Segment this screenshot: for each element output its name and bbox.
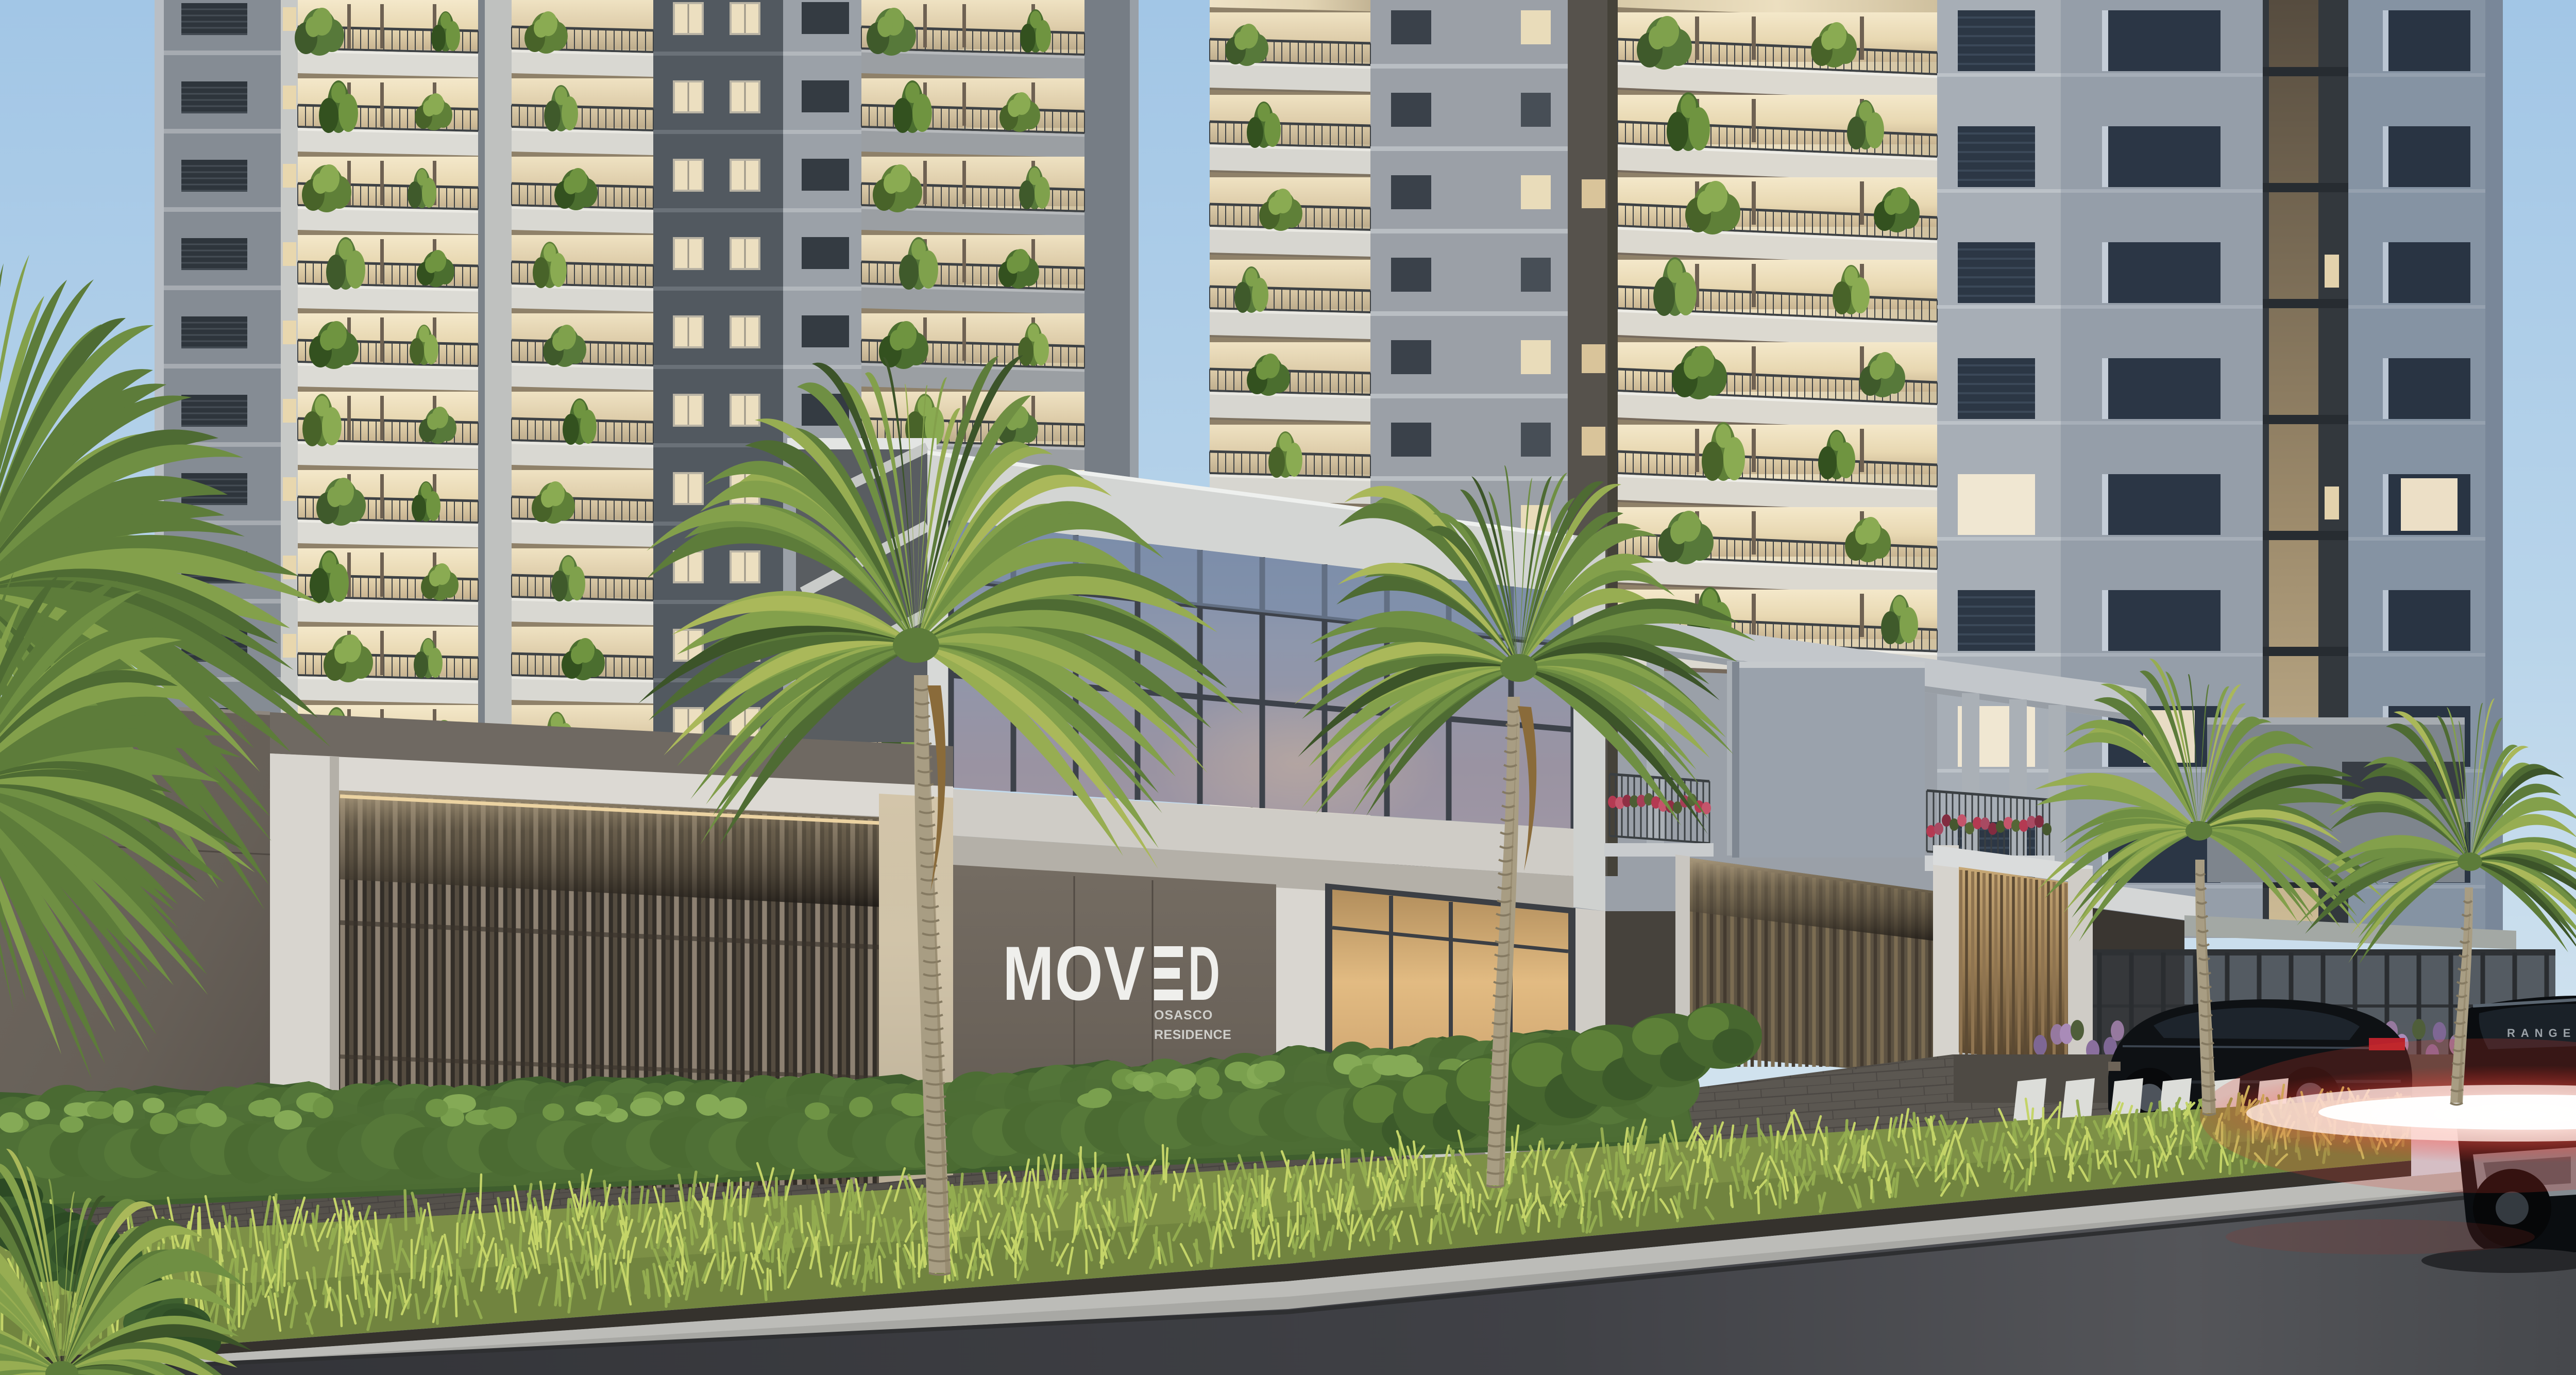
svg-text:D: D — [1188, 930, 1220, 1016]
svg-text:RESIDENCE: RESIDENCE — [1154, 1028, 1231, 1042]
svg-text:MOV: MOV — [1003, 930, 1146, 1016]
svg-text:OSASCO: OSASCO — [1154, 1008, 1213, 1022]
svg-text:RANGE R: RANGE R — [2507, 1027, 2576, 1039]
